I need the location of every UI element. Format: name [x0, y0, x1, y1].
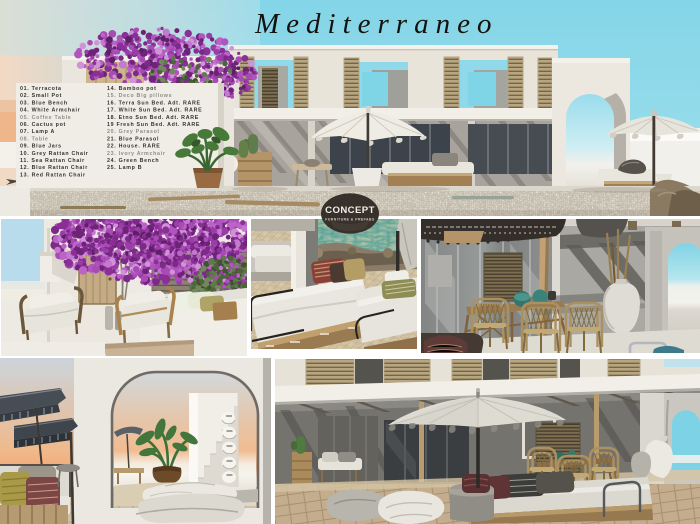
svg-text:15. Deco Big pillows: 15. Deco Big pillows	[107, 93, 172, 99]
svg-text:08. Table: 08. Table	[20, 136, 49, 142]
svg-text:01. Terracota: 01. Terracota	[20, 86, 62, 92]
svg-text:13. Red Rattan Chair: 13. Red Rattan Chair	[20, 172, 86, 178]
svg-text:09. Blue Jars: 09. Blue Jars	[20, 144, 62, 150]
svg-text:11. Sea Rattan Chair: 11. Sea Rattan Chair	[20, 158, 85, 164]
svg-text:25. Lamp B: 25. Lamp B	[107, 165, 142, 171]
svg-text:16. Terra Sun Bed. Adt. RARE: 16. Terra Sun Bed. Adt. RARE	[107, 100, 201, 106]
svg-text:05. Coffee Table: 05. Coffee Table	[20, 115, 71, 121]
svg-text:10. Grey Rattan Chair: 10. Grey Rattan Chair	[20, 151, 89, 157]
svg-text:14. Bamboo pot: 14. Bamboo pot	[107, 86, 157, 92]
svg-text:Mediterraneo: Mediterraneo	[254, 8, 498, 40]
svg-text:19 Fresh Sun Bed. Adt. RARE: 19 Fresh Sun Bed. Adt. RARE	[107, 122, 200, 128]
svg-text:23. Ivory Armchair: 23. Ivory Armchair	[107, 151, 166, 157]
svg-text:24. Green Bench: 24. Green Bench	[107, 158, 159, 164]
svg-text:02. Small Pot: 02. Small Pot	[20, 93, 62, 99]
svg-text:FURNITURE & PREFABS: FURNITURE & PREFABS	[325, 218, 375, 222]
svg-text:07. Lamp A: 07. Lamp A	[20, 129, 55, 135]
svg-text:06. Cactus pot: 06. Cactus pot	[20, 122, 66, 128]
svg-text:20. Grey Parasol: 20. Grey Parasol	[107, 129, 160, 135]
svg-text:21. Blue Parasol: 21. Blue Parasol	[107, 136, 159, 142]
svg-text:22. House. RARE: 22. House. RARE	[107, 144, 160, 150]
svg-text:12. Blue Rattan Chair: 12. Blue Rattan Chair	[20, 165, 88, 171]
svg-text:18. Etno Sun Bed. Adt. RARE: 18. Etno Sun Bed. Adt. RARE	[107, 115, 199, 121]
svg-text:17. White Sun Bed. Adt. RARE: 17. White Sun Bed. Adt. RARE	[107, 108, 202, 114]
svg-text:03. Blue Bench: 03. Blue Bench	[20, 100, 68, 106]
svg-text:CONCEPT: CONCEPT	[325, 205, 375, 216]
svg-text:04. White Armchair: 04. White Armchair	[20, 108, 80, 114]
